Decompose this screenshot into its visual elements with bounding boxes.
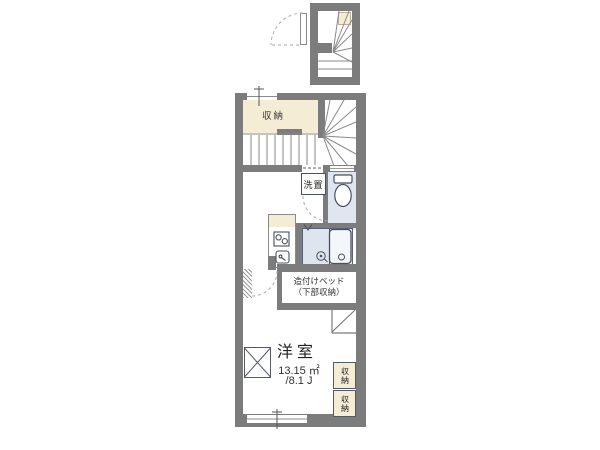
top-window-icon	[247, 93, 277, 100]
kitchen-counter	[269, 215, 295, 227]
bed-label-line1: 造付けベッド	[282, 276, 356, 287]
closet-bottom: 収納	[333, 390, 356, 417]
bed-bottom-wall	[277, 303, 356, 310]
built-in-bed-area: 造付けベッド （下部収納）	[282, 276, 356, 298]
entrance-door-swing-arc	[271, 13, 303, 45]
stair-partition-wall	[318, 96, 325, 138]
floorplan-canvas: 収納 洗置 造付けベッド （下部収納） 洋室 13.15 ㎡ /8.1 J 収納…	[0, 0, 600, 450]
toilet-room	[328, 172, 356, 230]
toilet-window-icon	[330, 166, 354, 171]
stair-landing-wall	[313, 43, 332, 53]
entrance-door-leaf	[300, 13, 307, 45]
bathroom	[302, 228, 353, 265]
storage-under-wall	[277, 129, 302, 135]
meter-box	[338, 12, 351, 25]
closet-top-label: 収納	[341, 367, 349, 385]
upper-storage-label: 収納	[262, 108, 285, 122]
room-name: 洋室	[261, 338, 333, 362]
closet-bottom-label: 収納	[341, 395, 349, 413]
window-x-icon	[244, 347, 271, 378]
kitchen-corner-wall	[268, 256, 276, 270]
hall-partition-wall	[243, 165, 302, 172]
room-area-tatami: /8.1 J	[261, 375, 337, 387]
bottom-window-icon	[247, 415, 307, 423]
wall-hatch-strip	[243, 269, 252, 298]
washer-label: 洗置	[303, 178, 323, 191]
washer-space: 洗置	[301, 173, 326, 195]
closet-top: 収納	[333, 362, 356, 389]
bed-top-wall	[277, 264, 356, 272]
bed-label-line2: （下部収納）	[282, 287, 356, 298]
